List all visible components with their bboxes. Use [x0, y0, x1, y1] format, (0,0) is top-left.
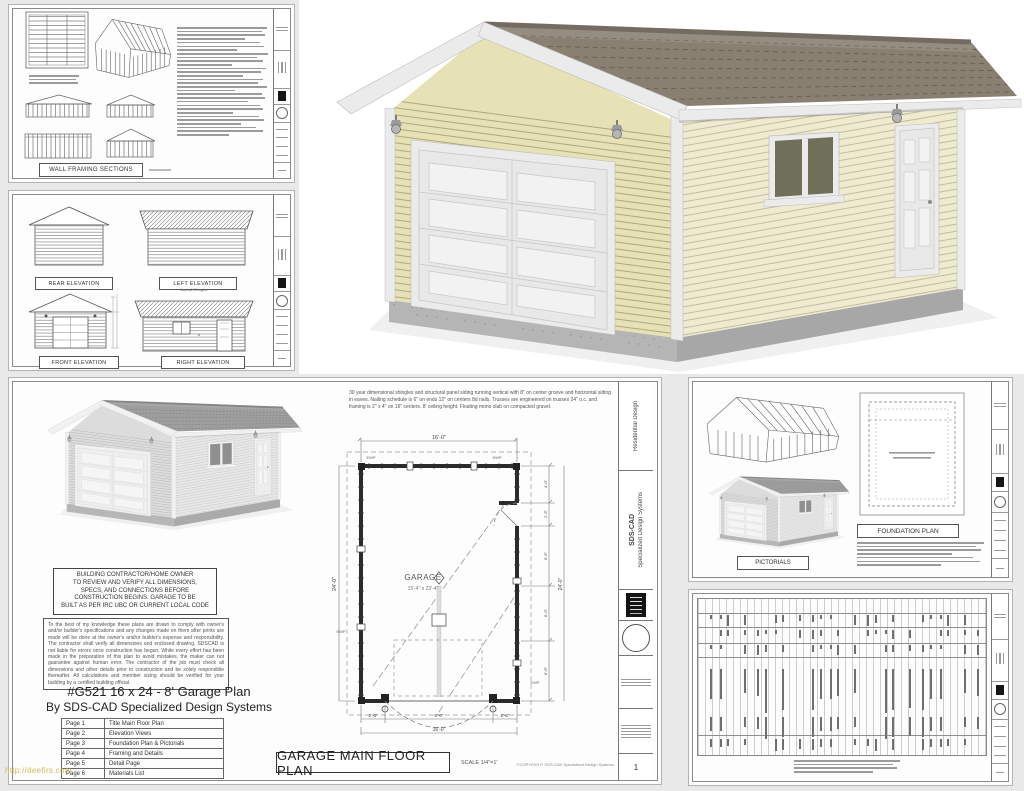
table-text-mark: [744, 615, 746, 625]
text-line: [29, 75, 79, 77]
text-line: [794, 764, 893, 766]
watermark-url: http://deefirs.com: [5, 766, 72, 775]
svg-text:24'-0": 24'-0": [332, 577, 338, 591]
company-name: SDS-CAD: [629, 514, 636, 546]
table-text-mark: [854, 669, 856, 693]
text-line: [29, 82, 78, 84]
text-line: [177, 71, 261, 73]
text-line: [177, 123, 241, 125]
framing-pictorial: [703, 388, 843, 466]
text-line: [794, 767, 897, 769]
table-row: Page 6Materials List: [62, 769, 224, 779]
table-text-mark: [799, 739, 801, 749]
revision-block: [619, 656, 653, 709]
table-text-mark: [892, 669, 894, 710]
stud-wall-framing: [23, 129, 93, 161]
title-block-strip: [273, 9, 290, 178]
garage-shape: [47, 400, 301, 530]
copyright-note: ©COPYRIGHT SDS-CAD Specialized Design Sy…: [509, 762, 614, 767]
table-text-mark: [875, 739, 877, 751]
plan-subtitle: By SDS-CAD Specialized Design Systems: [9, 700, 309, 714]
stamp-circle: [622, 624, 650, 652]
table-text-mark: [720, 615, 722, 619]
garage-shape: [337, 22, 1021, 372]
table-rule: [698, 657, 986, 658]
table-text-mark: [940, 717, 942, 731]
right-elevation-label: RIGHT ELEVATION: [161, 356, 245, 369]
table-text-mark: [744, 739, 746, 745]
table-text-mark: [744, 645, 746, 654]
post-marker: [432, 614, 446, 626]
table-text-mark: [812, 739, 814, 750]
gable-framing-section-2: [105, 127, 157, 161]
table-text-mark: [854, 615, 856, 625]
table-text-mark: [782, 615, 784, 622]
stamp-block: [619, 621, 653, 656]
table-text-mark: [812, 717, 814, 737]
elevations-sheet: REAR ELEVATION LEFT ELEVATION FRONT ELEV…: [8, 190, 295, 371]
page-index-table: Page 1Title Main Floor Plan Page 2Elevat…: [61, 718, 224, 779]
table-text-mark: [964, 645, 966, 654]
table-text-mark: [765, 669, 767, 713]
table-text-mark: [854, 739, 856, 745]
sheet-number-block: 1: [619, 754, 653, 780]
info-block: [619, 709, 653, 754]
svg-text:24'-0": 24'-0": [558, 577, 564, 590]
framing-pictorial: [93, 11, 173, 81]
garage-3d-rendering: [299, 0, 1024, 374]
table-text-mark: [837, 669, 839, 696]
page-no: Page 3: [62, 739, 105, 749]
discipline-block: Residential Design: [619, 382, 653, 471]
table-text-mark: [892, 645, 894, 652]
table-text-mark: [940, 739, 942, 747]
text-line: [857, 561, 980, 563]
table-text-mark: [977, 669, 979, 696]
title-block-strip: [273, 195, 290, 366]
text-line: [794, 760, 900, 762]
table-text-mark: [930, 739, 932, 747]
page-name: Materials List: [105, 769, 224, 779]
table-text-mark: [812, 669, 814, 710]
text-line: [177, 64, 232, 66]
text-line: [857, 542, 984, 544]
page-no: Page 2: [62, 729, 105, 739]
table-text-mark: [765, 630, 767, 634]
text-line: [177, 101, 248, 103]
framed-wall-elevation: [23, 93, 93, 119]
table-text-mark: [757, 645, 759, 655]
text-line: [857, 549, 981, 551]
table-text-mark: [909, 717, 911, 736]
gable-framing-section: [105, 93, 157, 119]
table-text-mark: [947, 630, 949, 636]
svg-text:15'-4" x 23'-4": 15'-4" x 23'-4": [408, 586, 439, 592]
sheet-number: 1: [634, 763, 638, 772]
title-block-strip: [991, 594, 1008, 781]
table-text-mark: [775, 630, 777, 634]
table-row: Page 3Foundation Plan & Pictorials: [62, 739, 224, 749]
table-text-mark: [922, 645, 924, 652]
table-text-mark: [837, 717, 839, 729]
table-text-mark: [885, 630, 887, 634]
text-line: [177, 75, 243, 77]
company-name-2: Specialized Design Systems: [638, 492, 644, 568]
table-text-mark: [964, 630, 966, 635]
table-text-mark: [830, 645, 832, 649]
table-text-mark: [930, 645, 932, 649]
text-line: [177, 119, 264, 121]
framing-notes: [177, 25, 271, 138]
text-line: [177, 68, 266, 70]
table-text-mark: [820, 717, 822, 731]
svg-text:6'-0": 6'-0": [543, 608, 548, 617]
table-text-mark: [830, 739, 832, 747]
table-text-mark: [964, 615, 966, 625]
title-block-strip: [991, 382, 1008, 577]
text-line: [177, 82, 258, 84]
table-text-mark: [909, 669, 911, 708]
table-text-mark: [892, 615, 894, 622]
text-line: [177, 60, 263, 62]
table-text-mark: [940, 669, 942, 699]
text-line: [857, 546, 976, 548]
table-text-mark: [727, 739, 729, 746]
table-rule: [698, 643, 986, 644]
text-line: [177, 134, 229, 136]
wall-framing-sheet: WALL FRAMING SECTIONS: [8, 4, 295, 183]
table-text-mark: [875, 615, 877, 623]
blueprint-collage: WALL FRAMING SECTIONS REAR ELEVATION LEF…: [0, 0, 1024, 791]
text-line: [857, 557, 973, 559]
table-text-mark: [892, 739, 894, 750]
table-row: Page 2Elevation Views: [62, 729, 224, 739]
materials-list-sheet: [688, 589, 1013, 786]
text-line: [177, 27, 267, 29]
text-line: [177, 46, 264, 48]
text-line: [29, 79, 76, 81]
floor-plan-drawing: 16'-0" 2'-6" 9'-0" 2'-6" 16'-0" 24'-0" 2…: [311, 428, 611, 748]
text-line: [177, 90, 235, 92]
table-text-mark: [977, 630, 979, 636]
table-text-mark: [867, 615, 869, 626]
svg-text:4'-0": 4'-0": [543, 479, 548, 488]
table-text-mark: [812, 615, 814, 622]
roof-material-note: Asphalt Shingles: [180, 287, 207, 292]
scale-note: [149, 169, 171, 171]
page-name: Foundation Plan & Pictorials: [105, 739, 224, 749]
table-text-mark: [885, 717, 887, 739]
table-text-mark: [854, 645, 856, 654]
table-text-mark: [875, 630, 877, 634]
page-name: Elevation Views: [105, 729, 224, 739]
table-text-mark: [710, 739, 712, 747]
table-text-mark: [775, 739, 777, 751]
table-text-mark: [744, 717, 746, 727]
table-text-mark: [710, 717, 712, 731]
table-text-mark: [720, 630, 722, 636]
text-line: [177, 53, 268, 55]
table-text-mark: [964, 739, 966, 745]
svg-text:2'-6": 2'-6": [501, 713, 510, 718]
table-row: Page 1Title Main Floor Plan: [62, 719, 224, 729]
disclaimer-text: To the best of my knowledge these plans …: [43, 618, 229, 690]
svg-text:EWP: EWP: [366, 455, 375, 460]
text-line: [177, 93, 262, 95]
table-text-mark: [820, 645, 822, 649]
table-text-mark: [757, 630, 759, 636]
drawing-title: GARAGE MAIN FLOOR PLAN: [276, 752, 450, 773]
text-line: [177, 127, 256, 129]
table-text-mark: [940, 630, 942, 636]
table-text-mark: [922, 717, 924, 737]
table-text-mark: [977, 645, 979, 655]
joist-plan-drawing: [25, 11, 89, 71]
discipline-label: Residential Design: [633, 401, 639, 451]
table-text-mark: [782, 717, 784, 737]
right-elevation-drawing: [129, 295, 261, 353]
table-text-mark: [720, 739, 722, 747]
table-rule: [698, 735, 986, 736]
table-row: Page 5Detail Page: [62, 759, 224, 769]
text-line: [177, 112, 233, 114]
table-text-mark: [922, 615, 924, 622]
text-line: [794, 771, 873, 773]
pictorials-label: PICTORIALS: [737, 556, 809, 570]
table-text-mark: [885, 645, 887, 652]
table-text-mark: [922, 739, 924, 750]
table-text-mark: [812, 630, 814, 639]
table-text-mark: [930, 717, 932, 731]
table-text-mark: [940, 645, 942, 649]
table-text-mark: [837, 645, 839, 655]
contractor-notice: BUILDING CONTRACTOR/HOME OWNER TO REVIEW…: [53, 568, 217, 615]
svg-text:EWP: EWP: [336, 629, 345, 634]
table-text-mark: [964, 717, 966, 727]
table-text-mark: [765, 645, 767, 652]
svg-text:2'-6": 2'-6": [369, 713, 378, 718]
garage-pictorial: [701, 472, 851, 549]
table-text-mark: [757, 669, 759, 696]
text-line: [177, 79, 263, 81]
table-text-mark: [930, 615, 932, 619]
plan-caption: [29, 73, 81, 86]
concrete-notes: [857, 540, 989, 568]
table-text-mark: [799, 630, 801, 638]
table-text-mark: [727, 630, 729, 636]
main-floor-plan-sheet: Residential Design SDS-CAD Specialized D…: [8, 377, 662, 785]
table-text-mark: [909, 645, 911, 651]
table-text-mark: [757, 717, 759, 729]
drawing-scale: SCALE 1/4"=1': [461, 760, 497, 766]
svg-text:6'-6": 6'-6": [543, 666, 548, 675]
title-block: Residential Design SDS-CAD Specialized D…: [618, 382, 653, 780]
foundation-plan-label: FOUNDATION PLAN: [857, 524, 959, 538]
table-text-mark: [727, 615, 729, 626]
text-line: [177, 108, 263, 110]
table-text-mark: [744, 630, 746, 635]
table-text-mark: [710, 615, 712, 619]
table-text-mark: [977, 717, 979, 729]
page-name: Framing and Details: [105, 749, 224, 759]
company-block: SDS-CAD Specialized Design Systems: [619, 471, 653, 590]
text-line: [177, 49, 237, 51]
sheet-title: WALL FRAMING SECTIONS: [39, 163, 143, 177]
text-line: [177, 116, 259, 118]
page-name: Title Main Floor Plan: [105, 719, 224, 729]
svg-text:2'-6": 2'-6": [543, 509, 548, 518]
table-text-mark: [830, 615, 832, 619]
table-text-mark: [892, 630, 894, 639]
dimension-labels: 16'-0" 2'-6" 9'-0" 2'-6" 16'-0" 24'-0" 2…: [332, 435, 564, 733]
table-text-mark: [799, 615, 801, 621]
table-text-mark: [782, 669, 784, 710]
table-text-mark: [820, 630, 822, 636]
text-line: [177, 34, 265, 36]
text-line: [177, 130, 263, 132]
svg-text:16'-0": 16'-0": [432, 435, 446, 441]
table-text-mark: [812, 645, 814, 652]
garage-render-color: [299, 0, 1024, 374]
table-text-mark: [867, 739, 869, 746]
table-row: Page 4Framing and Details: [62, 749, 224, 759]
table-text-mark: [940, 615, 942, 619]
svg-text:9'-0": 9'-0": [435, 713, 444, 718]
spec-notes: 30 year dimensional shingles and structu…: [349, 390, 611, 410]
table-text-mark: [885, 669, 887, 713]
text-line: [177, 97, 265, 99]
svg-text:16'-0": 16'-0": [433, 727, 446, 733]
page-name: Detail Page: [105, 759, 224, 769]
table-text-mark: [782, 739, 784, 750]
materials-footnote: [794, 758, 904, 775]
table-text-mark: [837, 630, 839, 636]
garage-render-grayscale: [33, 392, 303, 531]
front-elevation-drawing: [23, 291, 120, 353]
rear-elevation-drawing: [25, 203, 113, 273]
table-text-mark: [744, 669, 746, 693]
table-text-mark: [710, 669, 712, 699]
materials-table: [697, 598, 987, 756]
table-text-mark: [720, 717, 722, 731]
text-line: [857, 564, 941, 566]
left-elevation-drawing: [134, 203, 259, 273]
table-text-mark: [830, 717, 832, 731]
table-text-mark: [867, 630, 869, 636]
text-line: [177, 31, 262, 33]
text-line: [857, 553, 952, 555]
table-text-mark: [930, 669, 932, 699]
table-text-mark: [964, 669, 966, 693]
table-text-mark: [922, 669, 924, 710]
table-text-mark: [830, 669, 832, 699]
room-label: GARAGE 15'-4" x 23'-4": [404, 573, 441, 592]
table-text-mark: [820, 615, 822, 619]
garage-shape: [709, 477, 850, 549]
text-line: [177, 57, 257, 59]
center-beam: [437, 586, 441, 699]
rear-elevation-label: REAR ELEVATION: [35, 277, 113, 290]
text-line: [177, 38, 245, 40]
table-text-mark: [710, 645, 712, 649]
table-text-mark: [892, 717, 894, 737]
table-text-mark: [854, 717, 856, 727]
table-text-mark: [947, 615, 949, 626]
table-text-mark: [775, 615, 777, 623]
table-text-mark: [820, 669, 822, 699]
table-text-mark: [720, 645, 722, 649]
table-text-mark: [765, 717, 767, 739]
svg-text:EWP: EWP: [492, 455, 501, 460]
sds-logo: [626, 593, 646, 617]
logo-block: [619, 590, 653, 621]
front-elevation-label: FRONT ELEVATION: [39, 356, 119, 369]
svg-text:EWP: EWP: [530, 680, 539, 685]
dimension-lines: [339, 438, 564, 735]
text-line: [177, 86, 267, 88]
table-rule: [698, 627, 986, 628]
table-text-mark: [720, 669, 722, 699]
table-text-mark: [947, 739, 949, 746]
table-text-mark: [782, 645, 784, 652]
text-line: [177, 105, 260, 107]
foundation-plan-drawing: [857, 390, 967, 518]
table-text-mark: [820, 739, 822, 747]
page-no: Page 1: [62, 719, 105, 729]
svg-text:6'-6": 6'-6": [543, 551, 548, 560]
plan-title: #G521 16 x 24 - 8' Garage Plan: [9, 684, 309, 699]
text-line: [177, 42, 260, 44]
page-no: Page 4: [62, 749, 105, 759]
foundation-sheet: PICTORIALS FOUNDATION PLAN: [688, 377, 1013, 582]
svg-text:GARAGE: GARAGE: [404, 573, 441, 582]
table-rule: [698, 613, 986, 614]
table-text-mark: [909, 630, 911, 638]
